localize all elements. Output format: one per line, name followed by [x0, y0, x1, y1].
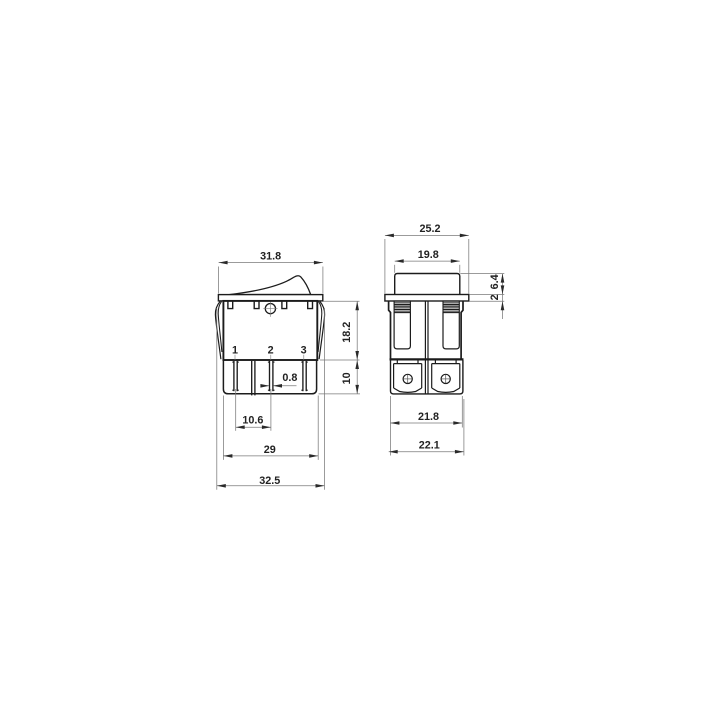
svg-text:0.8: 0.8: [282, 372, 297, 384]
svg-text:19.8: 19.8: [418, 249, 439, 261]
svg-text:18.2: 18.2: [341, 322, 353, 343]
svg-text:2: 2: [489, 294, 501, 300]
svg-text:1: 1: [232, 344, 238, 356]
svg-text:2: 2: [268, 344, 274, 356]
svg-text:3: 3: [301, 344, 307, 356]
svg-text:31.8: 31.8: [260, 251, 281, 263]
svg-text:10.6: 10.6: [242, 415, 263, 427]
svg-text:22.1: 22.1: [419, 439, 440, 451]
svg-text:6.4: 6.4: [489, 274, 501, 289]
svg-text:21.8: 21.8: [418, 411, 439, 423]
svg-text:25.2: 25.2: [419, 223, 440, 235]
svg-text:10: 10: [341, 372, 353, 384]
svg-text:32.5: 32.5: [259, 475, 280, 487]
svg-text:29: 29: [264, 444, 276, 456]
